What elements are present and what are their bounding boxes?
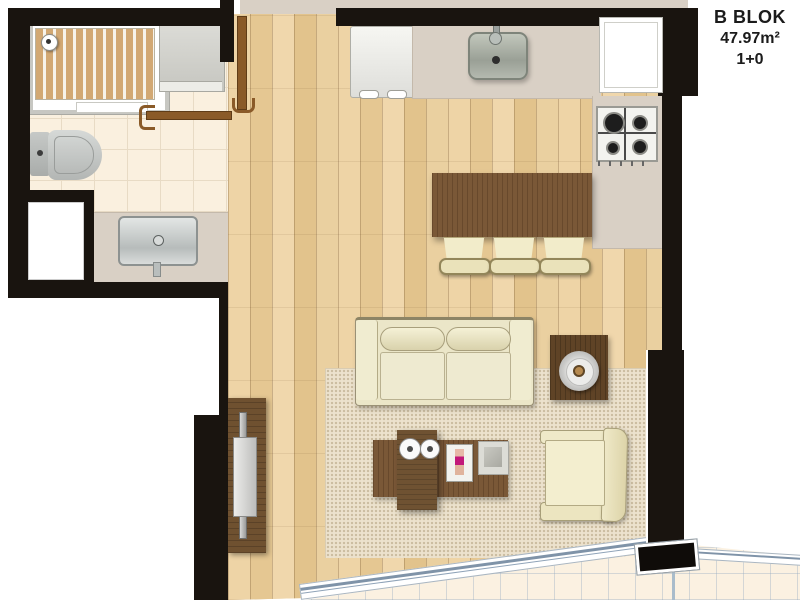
entry-door [237,16,247,110]
sofa-back-cushion-1 [380,327,445,351]
bathroom-door-handle [139,105,155,130]
shower-head-icon [41,34,58,51]
sofa-back-cushion-2 [446,327,511,351]
block-label: B BLOK [698,6,800,28]
coffee-table-plate-2 [420,439,440,459]
vanity-faucet-stem [153,262,161,277]
washer-cabinet-edge [160,81,222,91]
shower-head-center [46,39,51,44]
cooktop [596,106,658,162]
bar-stool-1 [439,258,491,275]
shower [29,22,169,114]
armchair [538,428,625,523]
sofa-armrest-right [509,320,531,400]
cooktop-burner-br [632,139,648,155]
fridge-handle [359,90,379,99]
sofa-seat-cushion-2 [446,352,511,400]
bar-stool-2 [489,258,541,275]
plate-2-center [427,446,433,452]
magazine-1 [446,444,473,482]
table-lamp-center [573,365,585,377]
wall-left-lower-thick [194,415,228,600]
wall-entry-jamb [220,0,234,62]
washer-cabinet [159,22,225,92]
kitchen-sink-drain [492,56,500,64]
vanity-sink [118,216,198,266]
sofa [355,317,534,406]
entry-door-hinge [232,98,255,113]
title-block: B BLOK 47.97m² 1+0 [698,6,800,70]
magazine-1-cover-figure [455,449,464,475]
armchair-seat [545,440,605,506]
cooktop-controls [598,161,652,166]
kitchen-faucet [489,32,502,45]
shaft-window [28,202,84,280]
wall-left-mid-thin [219,283,228,419]
bathroom-door [146,111,232,120]
kitchen-window [600,18,662,92]
cooktop-burner-large [603,112,625,134]
area-label: 47.97m² [698,28,800,49]
fridge-handle-2 [387,90,407,99]
cooktop-burner-tr [632,115,648,131]
vanity-faucet [153,235,164,246]
wall-end-column [635,539,699,574]
sofa-armrest-left [356,320,378,400]
wall-right-upper [662,26,682,356]
coffee-table-plate-1 [399,438,421,460]
table-lamp [559,351,599,391]
toilet-flush-button [37,150,43,156]
sofa-seat-cushion-1 [380,352,445,400]
floor-plan: B BLOK 47.97m² 1+0 [0,0,800,600]
magazine-2-cover [484,447,502,467]
wall-top-left [8,8,234,26]
magazine-2 [478,441,509,475]
bar-stool-3 [539,258,591,275]
plate-1-center [407,446,413,452]
balcony-railing-divider [672,567,675,600]
plan-type-label: 1+0 [698,49,800,70]
parapet-line [691,551,800,560]
fridge [350,26,416,98]
toilet-bowl [48,130,102,180]
tv-screen [233,437,257,517]
cooktop-burner-bl [606,141,620,155]
wall-right-lower [646,350,684,550]
toilet-tank [30,132,50,176]
shower-threshold [76,102,148,113]
bar-counter [432,173,592,237]
toilet-seat-line [54,136,94,174]
